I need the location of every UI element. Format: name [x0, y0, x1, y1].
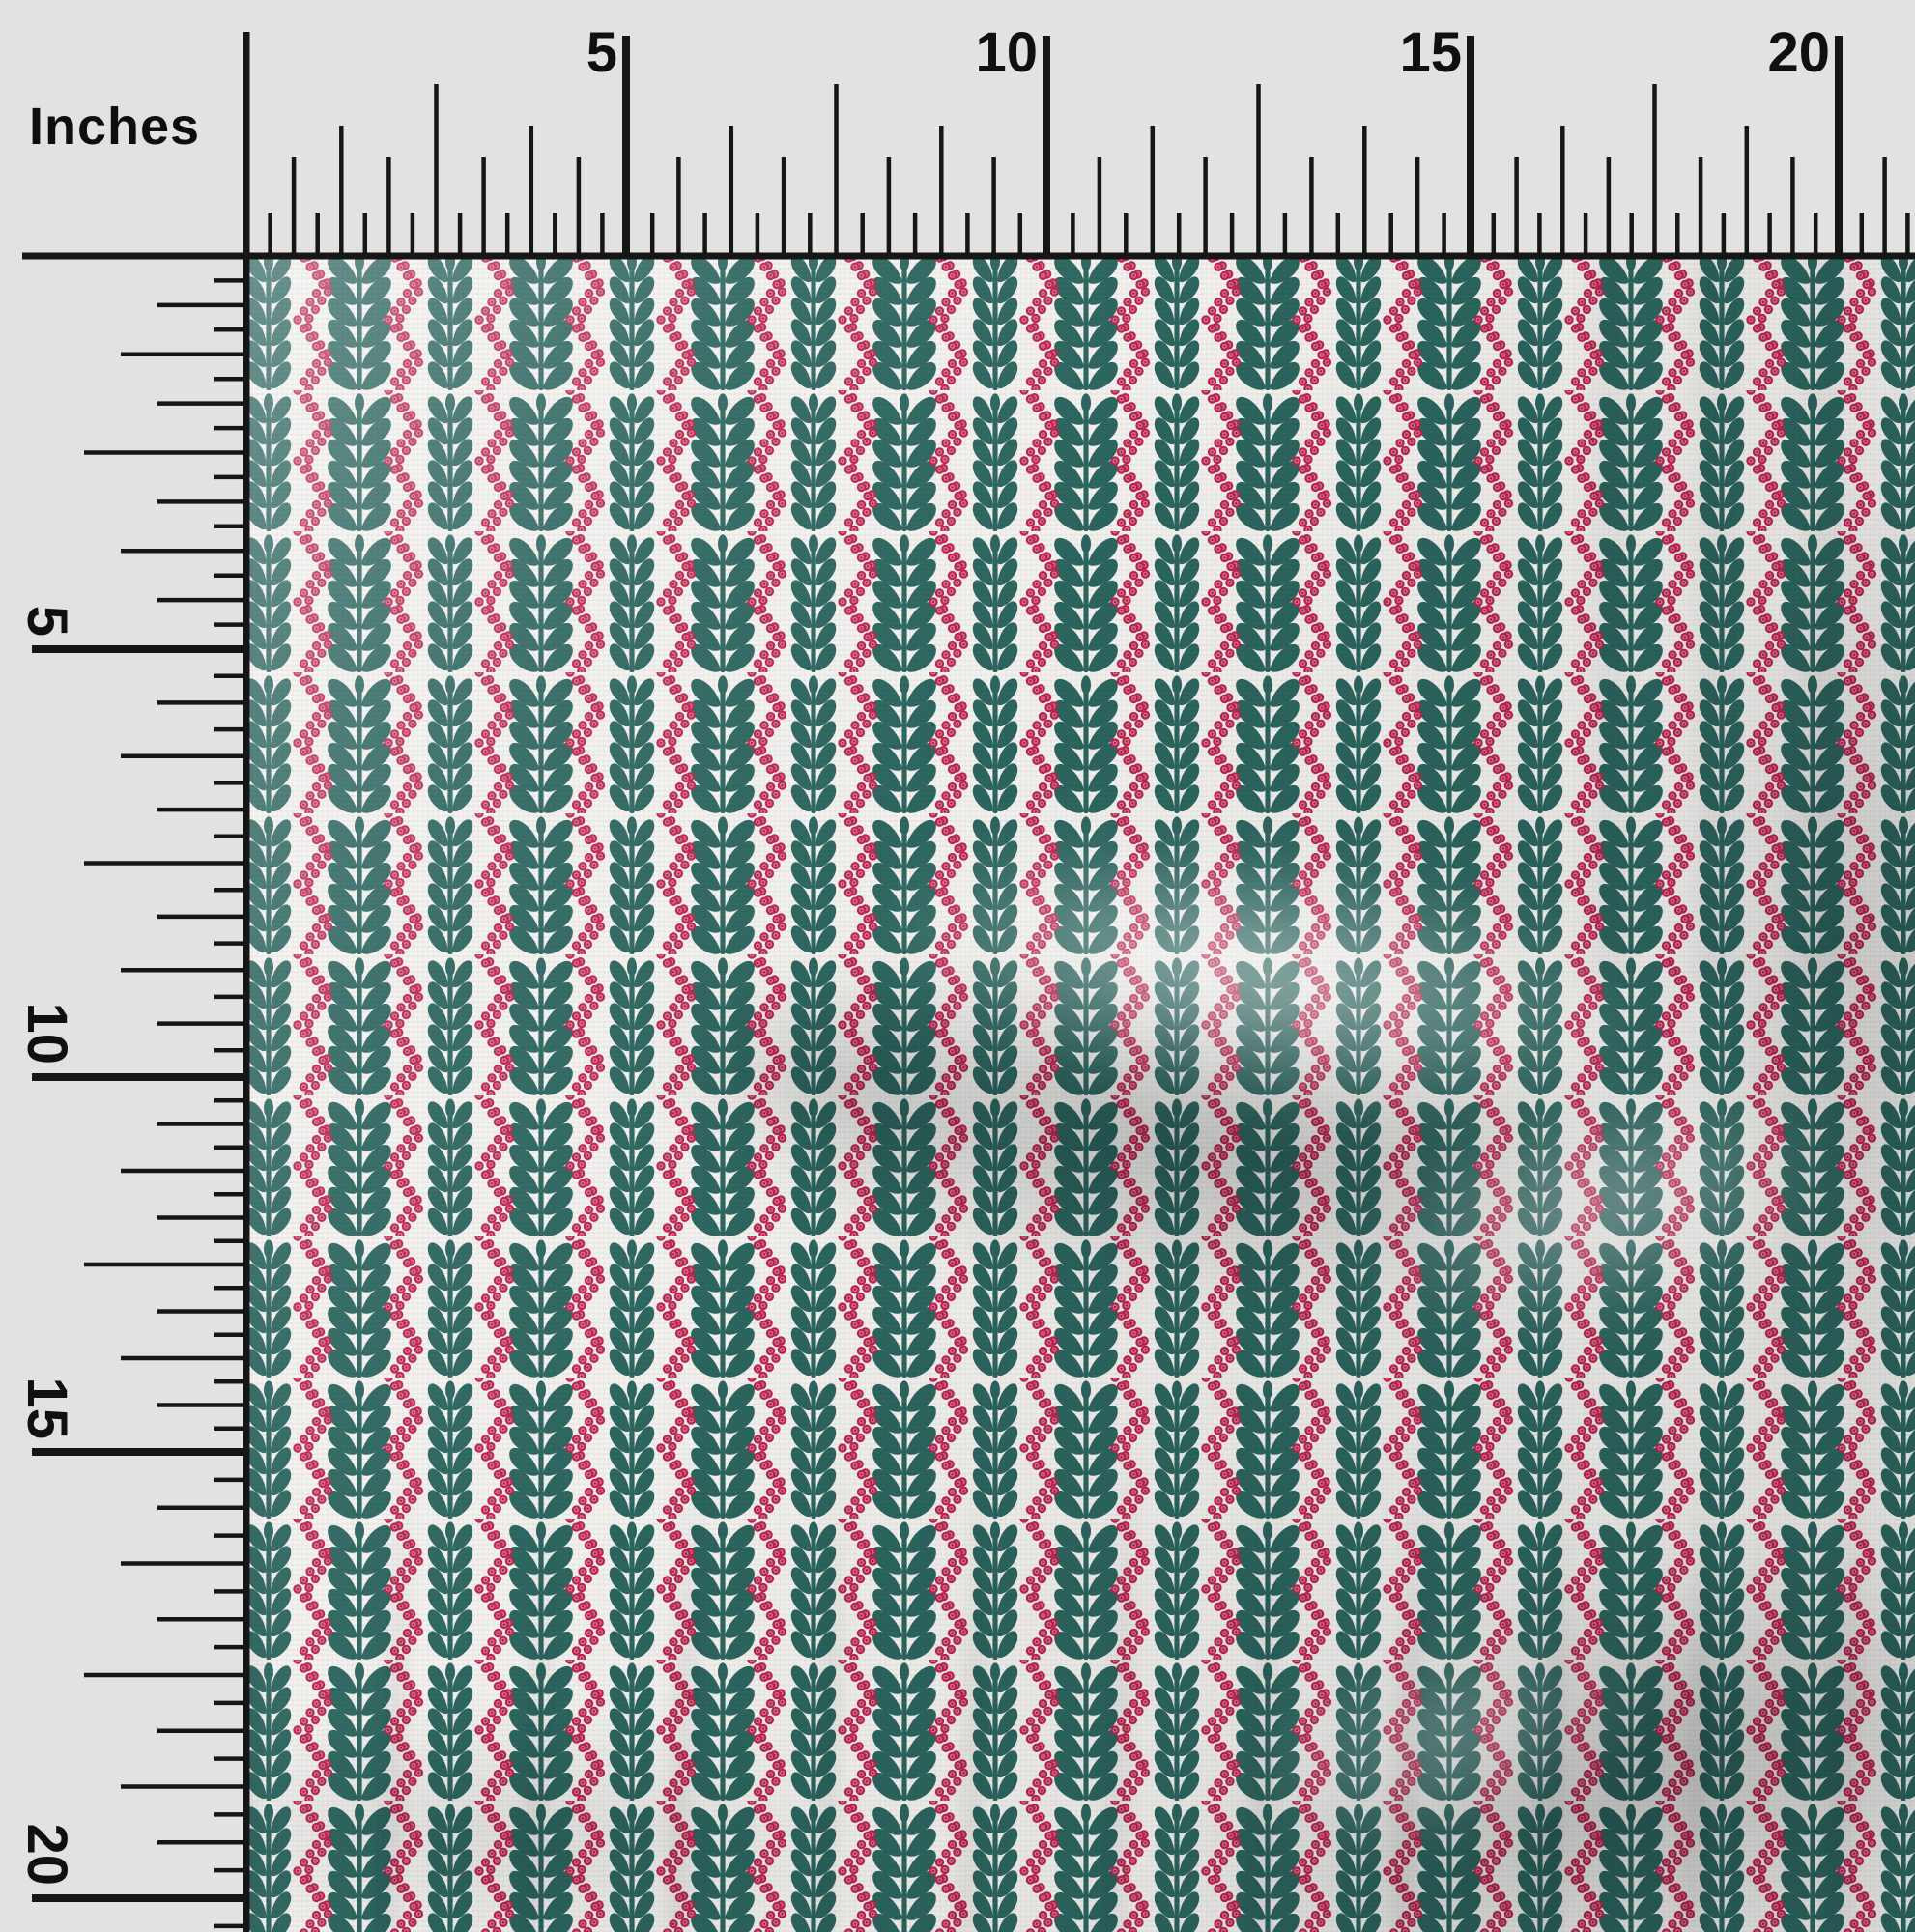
- inches-unit-label: Inches: [29, 97, 200, 156]
- fabric-swatch: [0, 0, 1915, 1932]
- fabric-product-photo: 51015205101520 Inches: [0, 0, 1915, 1932]
